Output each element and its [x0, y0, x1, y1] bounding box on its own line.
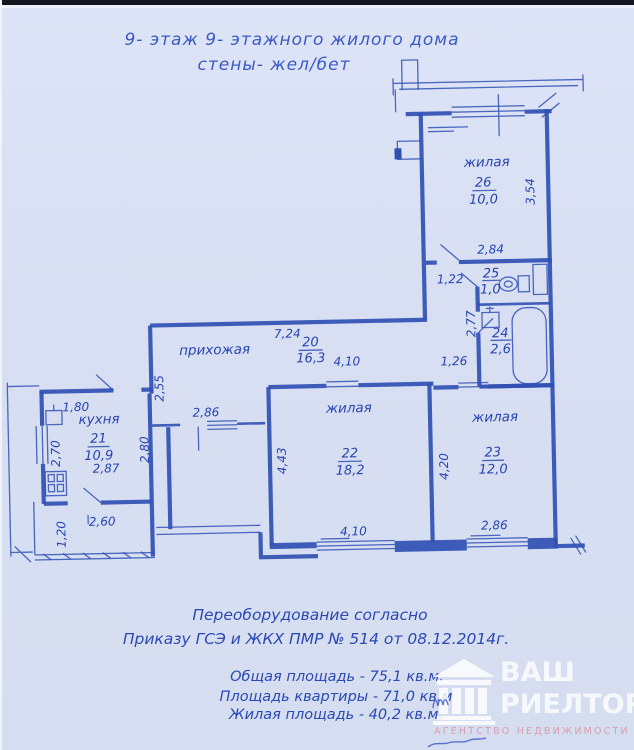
window-room-22 [317, 540, 395, 550]
balcony-top [393, 56, 584, 112]
plan-labels: жилая 26 10,0 3,54 2,84 1,22 25 1,0 2,77… [43, 153, 545, 548]
room-26-number: 26 [475, 175, 492, 190]
scan-edge-top [0, 0, 634, 5]
dim-r26-width: 2,84 [477, 242, 504, 257]
room-25-area: 1,0 [480, 282, 501, 297]
room-23-name: жилая [471, 409, 518, 426]
window-room-23 [467, 538, 528, 547]
room-24-area: 2,6 [490, 342, 511, 357]
sink-icon-kitchen [46, 404, 62, 424]
total-area: Общая площадь - 75,1 кв.м. [230, 669, 444, 685]
room-20-name: прихожая [179, 341, 250, 358]
room-23-number: 23 [484, 445, 501, 460]
window-room-26 [452, 106, 525, 118]
room-23-area: 12,0 [479, 462, 508, 478]
logo-title-line2: РИЕЛТОР [500, 689, 634, 720]
dim-hall-closet: 2,86 [192, 405, 219, 420]
agency-logo: ВАШ РИЕЛТОР АГЕНТСТВО НЕДВИЖИМОСТИ [428, 657, 634, 747]
vent-shaft [533, 264, 548, 294]
neighbor-balcony [7, 382, 43, 563]
dim-kitchen-left: 2,70 [48, 440, 63, 467]
header-line2: стены- жел/бет [198, 55, 351, 75]
room-26-name: жилая [463, 154, 510, 171]
scan-edge-left [0, 0, 2, 750]
room-21-name: кухня [78, 411, 119, 428]
window-kitchen [36, 426, 48, 464]
dim-bath-entry: 1,26 [440, 354, 467, 369]
dim-loggia-width: 2,60 [89, 514, 116, 529]
dim-r22-depth: 4,43 [275, 447, 290, 474]
room-25-number: 25 [483, 266, 500, 281]
scanned-floor-plan-page: 9- этаж 9- этажного жилого дома стены- ж… [0, 0, 634, 750]
walls-room-22 [266, 377, 586, 562]
toilet-icon [499, 276, 529, 293]
dim-corridor-length: 2,77 [464, 310, 479, 337]
note-line1: Переоборудование согласно [192, 606, 427, 624]
room-26-area: 10,0 [469, 192, 498, 208]
dim-kitchen-right: 2,80 [137, 436, 152, 463]
dim-kitchen-bottom: 2,87 [93, 461, 120, 476]
stove-icon [45, 471, 66, 495]
room-20-number: 20 [302, 335, 319, 350]
logo-title-line1: ВАШ [500, 657, 575, 688]
header: 9- этаж 9- этажного жилого дома стены- ж… [124, 30, 459, 75]
dim-loggia-depth: 1,20 [54, 521, 69, 548]
dim-r22-width-bottom: 4,10 [340, 524, 367, 539]
header-line1: 9- этаж 9- этажного жилого дома [124, 30, 459, 50]
footer: Переоборудование согласно Приказу ГСЭ и … [123, 606, 509, 723]
dim-r22-width-top: 4,10 [333, 354, 360, 369]
scan-edge-top-light [0, 5, 634, 8]
dim-r26-height: 3,54 [523, 178, 538, 205]
dim-hall-length: 7,24 [274, 326, 301, 341]
room-21-number: 21 [90, 431, 107, 446]
room-22-area: 18,2 [336, 463, 365, 479]
sink-icon-bath [482, 306, 499, 327]
living-area: Жилая площадь - 40,2 кв.м. [228, 707, 443, 723]
pen-squiggle [428, 738, 486, 747]
door-room-26 [440, 244, 458, 260]
dim-r23-width: 2,86 [481, 518, 508, 533]
bathtub-icon [512, 307, 548, 384]
door-room-22 [326, 381, 358, 387]
note-line2: Приказу ГСЭ и ЖКХ ПМР № 514 от 08.12.201… [123, 630, 509, 648]
neighbor-wall-stub [402, 60, 419, 90]
apartment-area: Площадь квартиры - 71,0 кв.м [220, 689, 453, 705]
closet-door [198, 427, 199, 451]
room-22-number: 22 [341, 446, 358, 461]
dim-r23-depth: 4,20 [437, 453, 452, 480]
dim-hall-left: 2,55 [152, 375, 167, 402]
room-24-number: 24 [492, 326, 509, 341]
door-kitchen [96, 374, 113, 390]
wall-break-top-right [538, 93, 559, 117]
closet-window [207, 421, 237, 430]
floor-plan-drawing: 9- этаж 9- этажного жилого дома стены- ж… [0, 0, 634, 750]
plan-group: жилая 26 10,0 3,54 2,84 1,22 25 1,0 2,77… [1, 56, 593, 566]
room-22-name: жилая [325, 400, 372, 417]
logo-tagline: АГЕНТСТВО НЕДВИЖИМОСТИ [434, 726, 630, 737]
walls-room-23 [433, 381, 554, 388]
room-20-area: 16,3 [296, 351, 325, 367]
door-loggia [83, 488, 100, 503]
dim-corridor-width: 1,22 [437, 272, 464, 287]
